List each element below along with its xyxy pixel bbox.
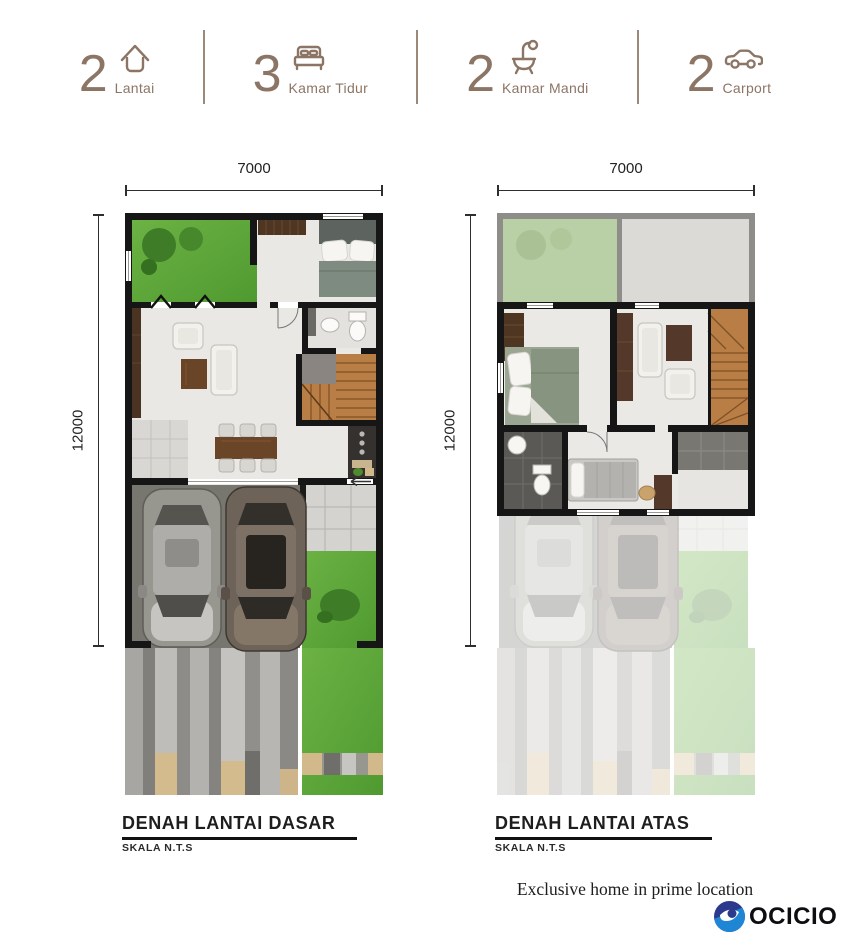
bathroom-upstairs (504, 432, 562, 509)
upper-plan-title: DENAH LANTAI ATAS (495, 813, 712, 840)
stat-carport: 2 Carport (687, 38, 772, 96)
stat-bedrooms: 3 Kamar Tidur (253, 38, 368, 96)
ground-plan-width-dimline (125, 185, 383, 196)
ground-plan-width-dim: 7000 (125, 160, 383, 177)
house-icon (115, 38, 155, 78)
upper-plan-title-block: DENAH LANTAI ATAS SKALA N.T.S (495, 813, 712, 854)
stats-divider (416, 30, 418, 104)
stats-divider (637, 30, 639, 104)
upper-plan-height-dimline (465, 214, 476, 647)
stats-bar: 2 Lantai 3 Kamar Tidur (0, 24, 850, 110)
upper-floor-plan (497, 213, 755, 798)
tagline: Exclusive home in prime location (505, 879, 765, 900)
kitchen-counter (348, 426, 376, 478)
stairs-upper (708, 309, 748, 428)
stat-floors: 2 Lantai (79, 38, 155, 96)
floors-count: 2 (79, 53, 108, 96)
dining-set (215, 424, 277, 472)
upper-plan-height-dim: 12000 (442, 399, 459, 463)
upper-plan-scale: SKALA N.T.S (495, 842, 712, 854)
balcony (678, 432, 748, 509)
stat-bathrooms: 2 Kamar Mandi (466, 38, 588, 96)
stats-divider (203, 30, 205, 104)
ground-plan-title: DENAH LANTAI DASAR (122, 813, 357, 840)
car-icon (723, 38, 763, 78)
carport-label: Carport (723, 80, 772, 96)
floorplan-flyer: 2 Lantai 3 Kamar Tidur (0, 0, 850, 941)
bath-icon (502, 38, 542, 78)
upper-plan-width-dim: 7000 (497, 160, 755, 177)
ground-plan-scale: SKALA N.T.S (122, 842, 357, 854)
front-garden (132, 220, 257, 302)
ground-plan-title-block: DENAH LANTAI DASAR SKALA N.T.S (122, 813, 357, 854)
ground-floor-plan (125, 213, 383, 798)
bedrooms-label: Kamar Tidur (289, 80, 369, 96)
brand-name: OCICIO (749, 903, 837, 931)
tiled-patch (132, 420, 188, 478)
bathrooms-count: 2 (466, 53, 495, 96)
bed-icon (289, 38, 329, 78)
bathroom-downstairs (308, 308, 376, 348)
bedrooms-count: 3 (253, 53, 282, 96)
brand-logo-icon (714, 901, 745, 932)
upper-plan-width-dimline (497, 185, 755, 196)
bathrooms-label: Kamar Mandi (502, 80, 589, 96)
ground-plan-height-dimline (93, 214, 104, 647)
brand-logo: OCICIO (714, 901, 837, 932)
floors-label: Lantai (115, 80, 155, 96)
stairs-ground (296, 354, 376, 425)
carport-count: 2 (687, 53, 716, 96)
ground-plan-height-dim: 12000 (70, 399, 87, 463)
